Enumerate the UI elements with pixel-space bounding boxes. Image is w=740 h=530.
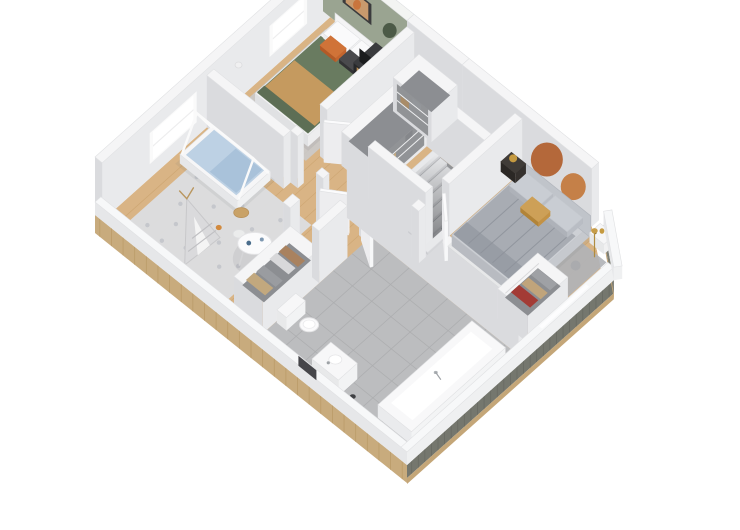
toy-ball <box>216 225 222 230</box>
side-table <box>234 208 249 218</box>
gold-vase <box>600 228 605 234</box>
wall-master-north-a <box>412 199 426 263</box>
wall-kids-room-south-west <box>291 125 304 188</box>
gold-sphere-lamp <box>509 154 517 162</box>
wall-circle-decor <box>383 23 397 38</box>
kids-room-art-accent <box>353 0 361 10</box>
pendant-lamp <box>235 62 242 68</box>
sink-basin <box>329 355 342 364</box>
toilet-seat <box>303 320 315 328</box>
floorplan-3d-render <box>0 0 740 530</box>
sink-faucet <box>327 361 330 364</box>
floor-lamp-shade <box>591 228 597 233</box>
table-toy <box>260 238 264 242</box>
floorplan-svg <box>0 0 740 530</box>
table-toy <box>246 241 251 246</box>
